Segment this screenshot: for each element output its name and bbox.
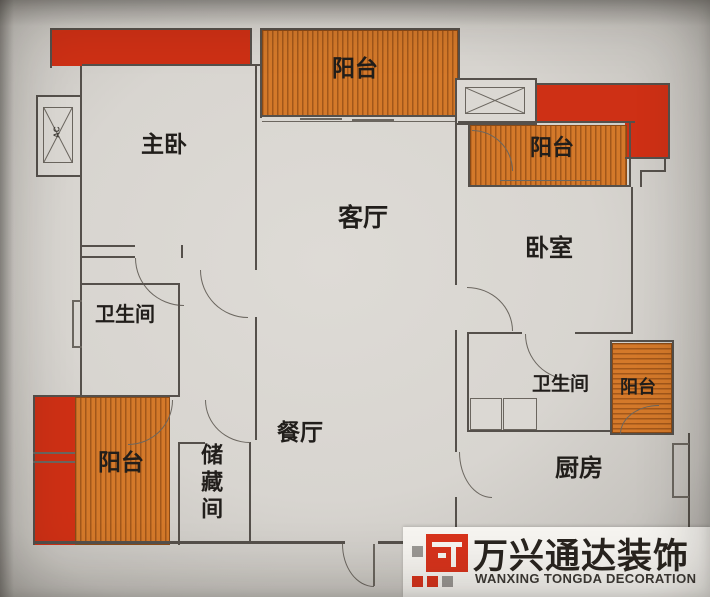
room-label-living-room: 客厅 <box>338 205 388 231</box>
wall-segment <box>610 340 612 435</box>
room-label-master-bedroom: 主卧 <box>141 132 187 156</box>
window-left-bath <box>72 300 74 347</box>
wall-segment <box>470 185 631 187</box>
room-label-balcony-right: 阳台 <box>620 378 656 397</box>
window-kitchen <box>672 496 689 498</box>
wall-segment <box>467 332 469 432</box>
window-balcony-tr <box>500 180 600 181</box>
door-arc-hall-bathroom <box>200 270 248 318</box>
wall-segment <box>458 121 635 123</box>
ac-unit-top-right <box>455 78 537 125</box>
wall-segment <box>535 83 670 85</box>
ac-unit-left: AC <box>36 95 82 177</box>
wall-segment <box>631 187 633 334</box>
wall-segment <box>33 541 345 544</box>
wall-segment <box>80 283 180 285</box>
wall-segment <box>262 28 460 30</box>
wall-segment <box>255 66 257 270</box>
watermark-logo: 万兴通达装饰 WANXING TONGDA DECORATION <box>403 527 710 597</box>
wall-segment <box>50 28 52 68</box>
door-arc-kitchen <box>459 452 492 498</box>
floor-plan-photo: AC <box>0 0 710 597</box>
fixture-counter <box>470 398 502 430</box>
window-tick <box>352 119 394 121</box>
fixture-counter <box>503 398 537 430</box>
wall-segment <box>260 28 262 118</box>
room-label-balcony-bottom-left: 阳台 <box>98 450 144 474</box>
window-sliding-top <box>262 115 458 117</box>
wall-segment <box>33 395 180 397</box>
wall-segment <box>468 123 470 187</box>
room-label-bathroom-left: 卫生间 <box>95 305 155 326</box>
wall-segment <box>181 245 183 258</box>
wall-segment <box>82 64 262 66</box>
room-label-balcony-top-right: 阳台 <box>530 136 574 159</box>
wall-segment <box>455 330 457 452</box>
window-kitchen <box>672 443 674 497</box>
wall-segment <box>629 123 631 187</box>
red-zone-bottom-left <box>33 397 75 545</box>
ac-unit-top-right-inner <box>465 87 525 114</box>
wall-segment <box>672 340 674 435</box>
wall-segment <box>640 170 666 172</box>
wall-segment <box>250 30 252 66</box>
window-tick <box>300 118 342 120</box>
wall-segment <box>82 245 135 247</box>
ac-cross-icon <box>466 88 524 113</box>
door-arc-storage <box>205 400 250 443</box>
wall-segment <box>255 317 257 440</box>
red-zone-top-left <box>52 30 250 66</box>
wall-segment <box>33 395 35 545</box>
wall-segment <box>178 283 180 397</box>
wall-segment <box>455 120 457 285</box>
wall-segment <box>82 256 135 258</box>
room-label-dining-room: 餐厅 <box>277 420 323 444</box>
door-arc-master-bedroom <box>135 258 184 306</box>
entry-door-panel <box>373 544 375 586</box>
ac-unit-left-inner: AC <box>43 107 73 163</box>
window-red-left <box>33 461 75 463</box>
ac-label: AC <box>54 126 62 138</box>
watermark-company-en: WANXING TONGDA DECORATION <box>475 571 696 586</box>
wall-segment <box>50 28 252 30</box>
wall-segment <box>668 83 670 159</box>
room-label-bathroom-right: 卫生间 <box>532 375 589 395</box>
logo-mark-icon <box>412 534 468 590</box>
wall-segment <box>467 332 522 334</box>
window-left-bath <box>72 300 82 302</box>
wall-segment <box>467 430 612 432</box>
room-label-kitchen: 厨房 <box>555 456 603 481</box>
wall-segment <box>178 442 180 545</box>
wall-segment <box>249 442 251 543</box>
window-sliding-top-rail <box>262 121 458 122</box>
room-label-balcony-top: 阳台 <box>332 56 378 80</box>
window-red-left <box>33 452 75 454</box>
room-label-bedroom: 卧室 <box>525 236 573 261</box>
wall-segment <box>610 340 674 342</box>
window-kitchen <box>672 443 689 445</box>
room-label-storage-room: 储藏间 <box>199 443 222 524</box>
window-left-bath <box>72 346 82 348</box>
door-arc-entry <box>342 544 374 587</box>
wall-segment <box>640 170 642 187</box>
wall-segment <box>575 332 633 334</box>
door-arc-bedroom <box>467 287 513 331</box>
